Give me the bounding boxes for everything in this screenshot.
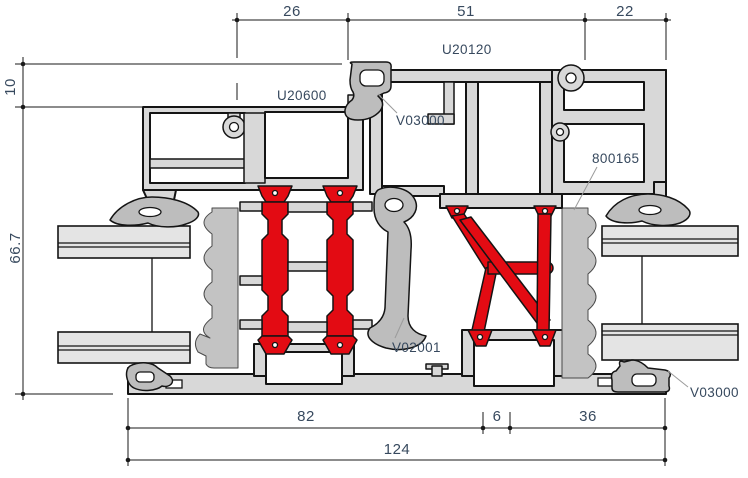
- brush-seal-left: [195, 208, 238, 368]
- gasket-wing-left: [110, 197, 199, 227]
- label-v03000-bottom: V03000: [690, 385, 739, 400]
- glazing-unit-left: [58, 226, 190, 363]
- label-v02001: V02001: [392, 340, 441, 355]
- glass-pane: [58, 226, 190, 258]
- dim-bottom-36: 36: [579, 408, 597, 425]
- dim-bottom-6: 6: [493, 408, 502, 425]
- thermal-break-truss-right: [446, 206, 556, 346]
- dim-top-26: 26: [283, 3, 301, 20]
- gasket-v02001-center: [368, 187, 426, 349]
- dim-bottom-124: 124: [384, 441, 411, 458]
- frame-profile-u20120: [358, 65, 666, 208]
- dim-left-10: 10: [2, 78, 19, 96]
- label-u20120: U20120: [442, 42, 492, 57]
- gasket-wing-right: [606, 194, 690, 225]
- thermal-break-strip: [258, 186, 292, 354]
- dim-bottom-82: 82: [297, 408, 315, 425]
- glazing-unit-right: [602, 226, 738, 360]
- glazing-clip-left: [127, 363, 173, 391]
- dim-top-51: 51: [457, 3, 475, 20]
- label-u20600: U20600: [277, 88, 327, 103]
- glass-pane: [602, 226, 738, 256]
- dim-top-22: 22: [616, 3, 634, 20]
- glass-pane: [58, 332, 190, 363]
- gasket-v03000-top: [345, 62, 391, 120]
- foam-seal-800165: [562, 208, 596, 378]
- profile-cross-section-drawing: 26 51 22 10 66.7 82 6 36 124 U20600 U201…: [0, 0, 748, 478]
- cad-drawing-canvas: 26 51 22 10 66.7 82 6 36 124 U20600 U201…: [0, 0, 748, 478]
- gasket-v03000-bottom: [612, 360, 671, 392]
- thermal-break-left-pair: [240, 186, 372, 354]
- label-v03000-top: V03000: [396, 113, 445, 128]
- glass-pane: [602, 324, 738, 360]
- label-800165: 800165: [592, 151, 639, 166]
- dim-left-66-7: 66.7: [7, 232, 24, 263]
